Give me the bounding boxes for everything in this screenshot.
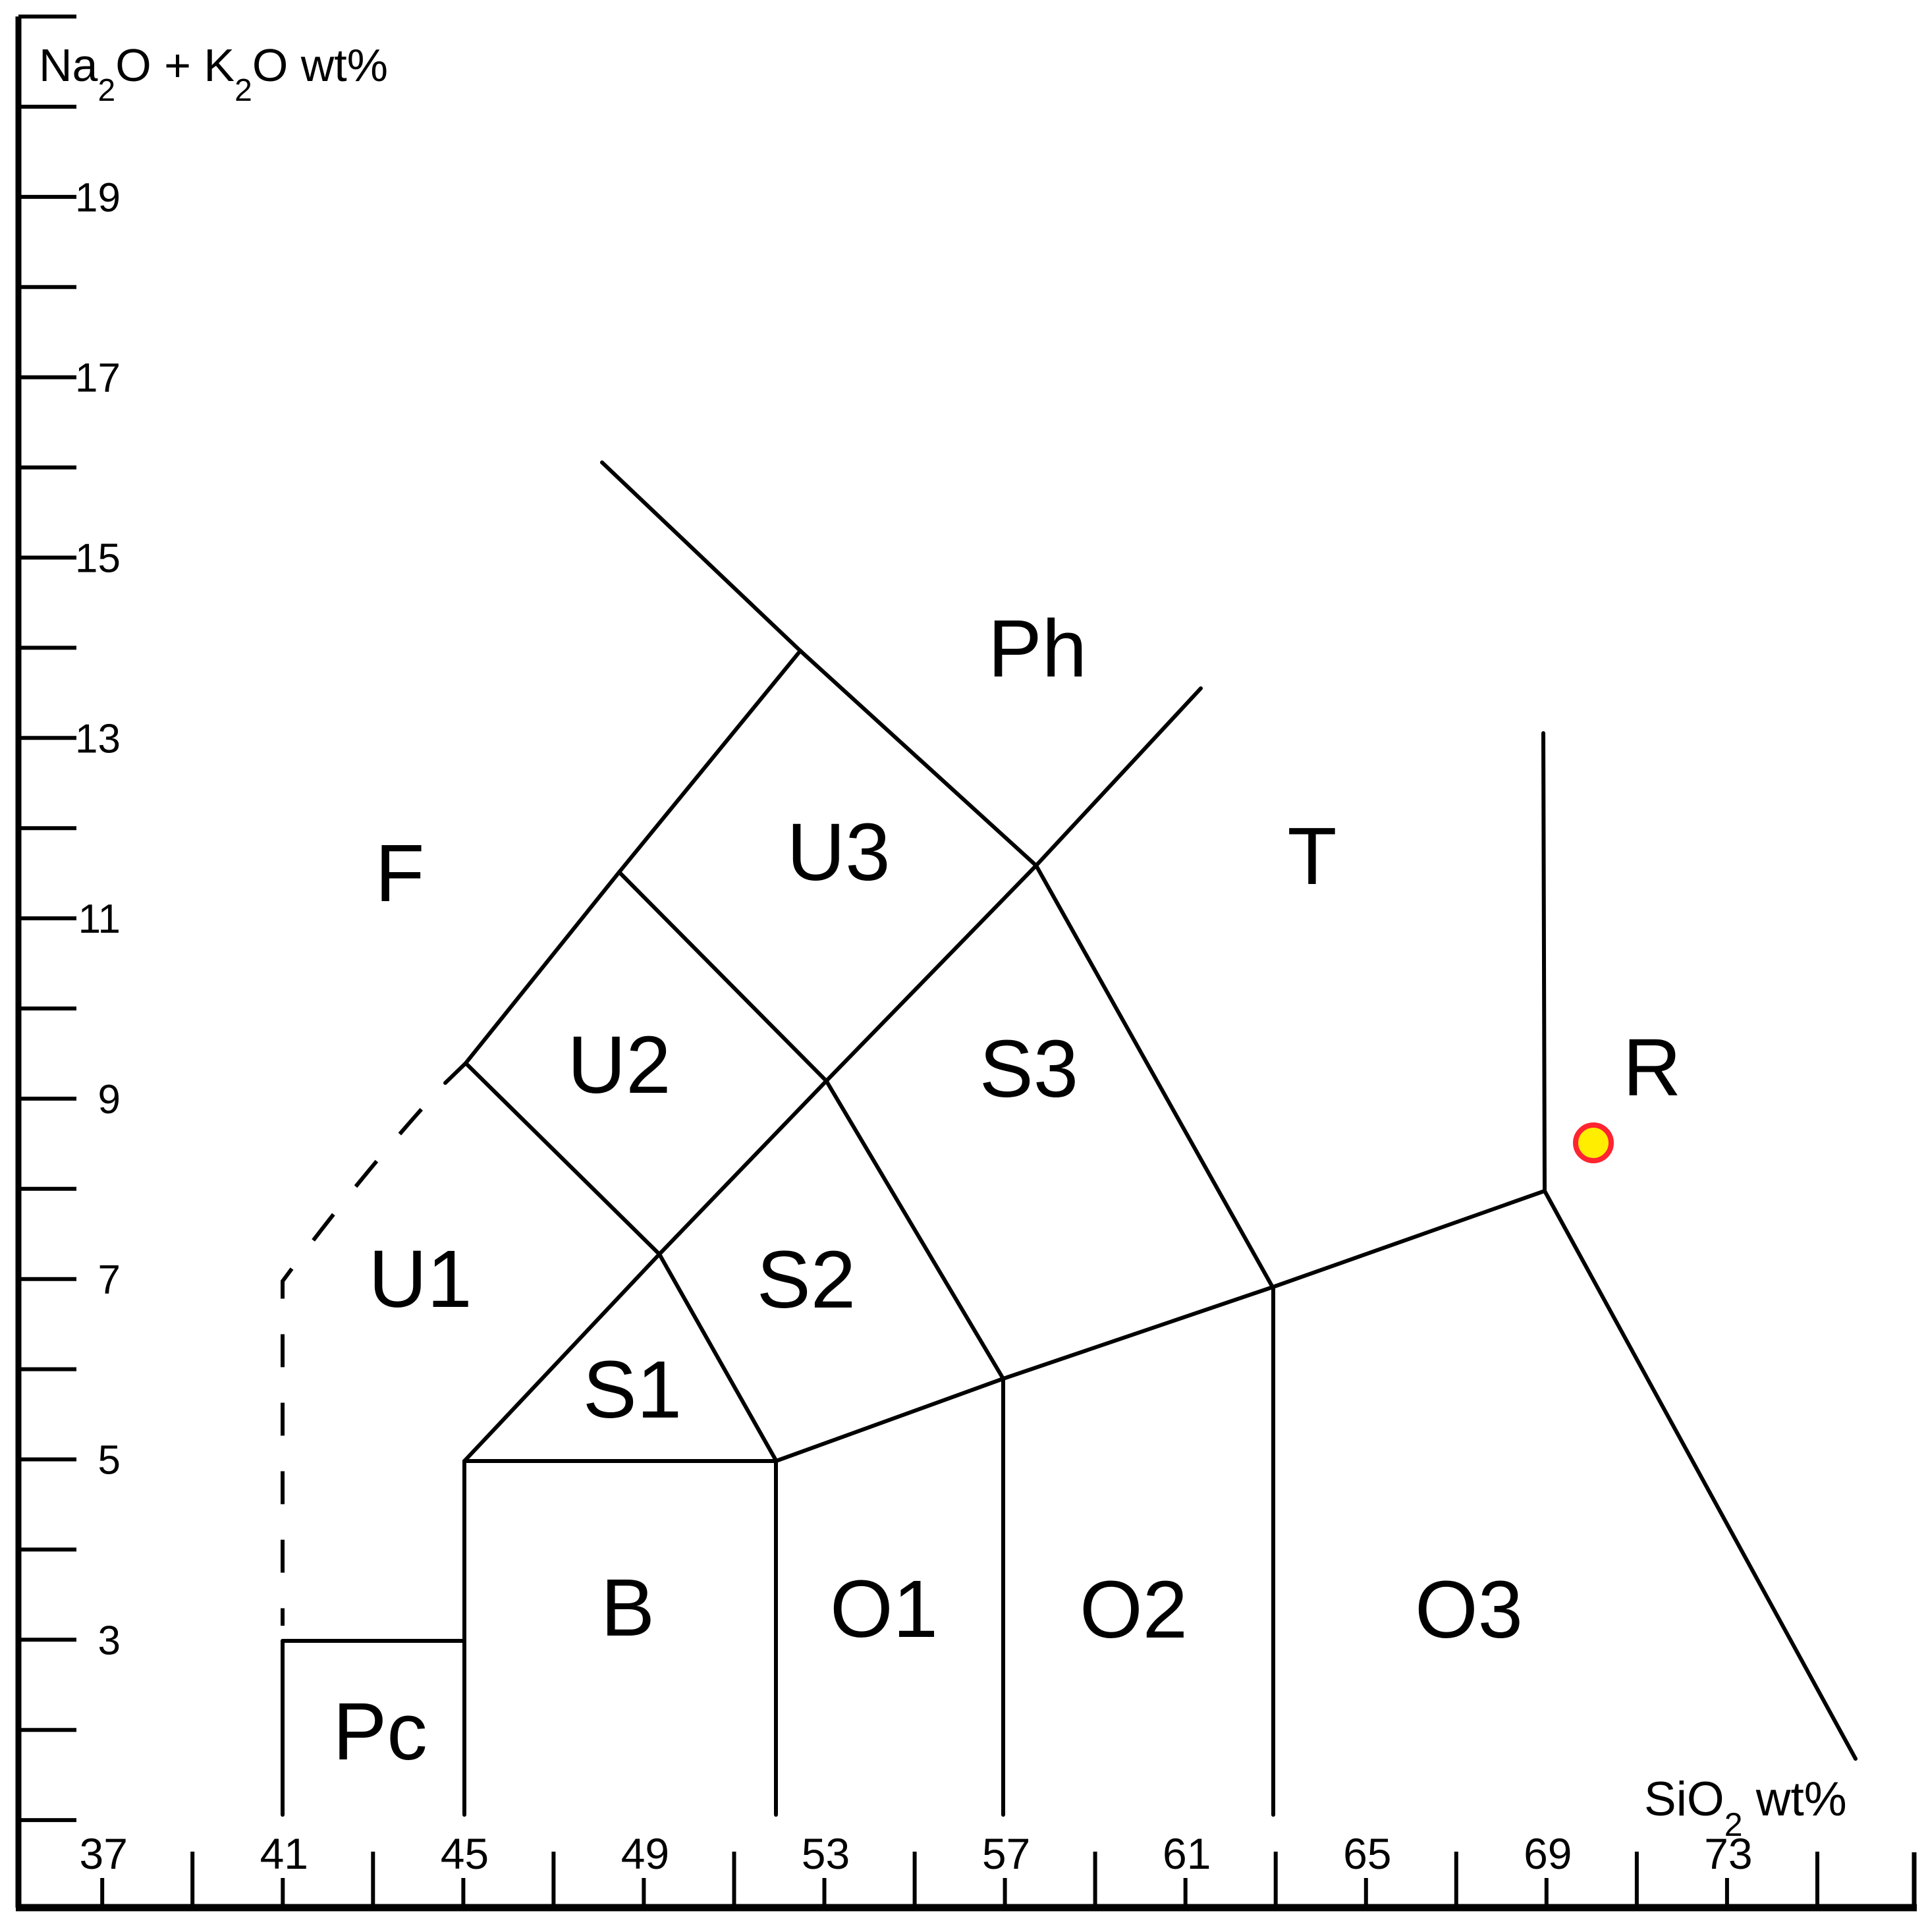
svg-text:R: R [1623, 1023, 1682, 1113]
svg-text:5: 5 [98, 1438, 121, 1483]
svg-text:57: 57 [982, 1829, 1030, 1878]
svg-text:B: B [601, 1563, 655, 1653]
svg-text:19: 19 [75, 175, 121, 221]
svg-text:S3: S3 [979, 1024, 1078, 1115]
svg-text:S1: S1 [583, 1345, 682, 1435]
svg-text:69: 69 [1524, 1829, 1572, 1878]
svg-text:7: 7 [98, 1257, 121, 1303]
svg-text:15: 15 [75, 536, 121, 582]
svg-text:17: 17 [75, 356, 121, 401]
svg-text:T: T [1287, 812, 1336, 902]
svg-text:U2: U2 [567, 1020, 671, 1111]
svg-text:O3: O3 [1415, 1565, 1523, 1655]
svg-text:O1: O1 [830, 1564, 938, 1655]
svg-text:Pc: Pc [333, 1687, 427, 1777]
svg-text:9: 9 [98, 1077, 121, 1122]
svg-text:U3: U3 [786, 808, 890, 898]
svg-text:45: 45 [441, 1829, 489, 1878]
svg-text:F: F [375, 829, 424, 919]
svg-text:53: 53 [802, 1829, 850, 1878]
svg-text:61: 61 [1163, 1829, 1211, 1878]
svg-text:37: 37 [79, 1829, 127, 1878]
svg-text:3: 3 [98, 1618, 121, 1663]
svg-text:41: 41 [260, 1829, 308, 1878]
svg-text:13: 13 [75, 716, 121, 761]
svg-text:65: 65 [1343, 1829, 1391, 1878]
svg-text:S2: S2 [757, 1235, 856, 1325]
svg-text:O2: O2 [1080, 1565, 1188, 1655]
svg-text:11: 11 [78, 897, 121, 942]
svg-text:Ph: Ph [988, 604, 1087, 694]
svg-text:49: 49 [621, 1829, 669, 1878]
svg-text:U1: U1 [368, 1234, 472, 1325]
